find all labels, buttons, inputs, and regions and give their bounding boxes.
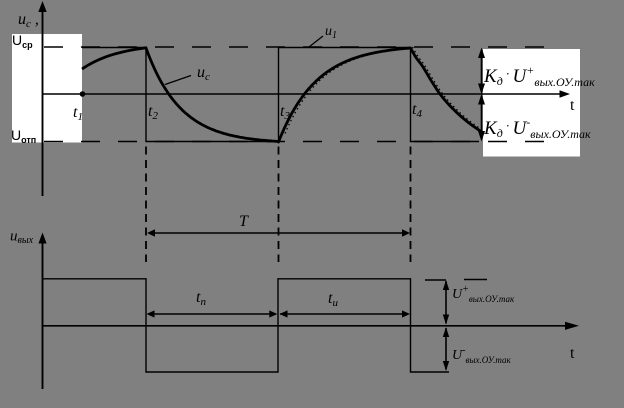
- svg-text:T: T: [239, 213, 249, 230]
- svg-text:t: t: [570, 345, 575, 362]
- svg-text:t: t: [570, 97, 575, 114]
